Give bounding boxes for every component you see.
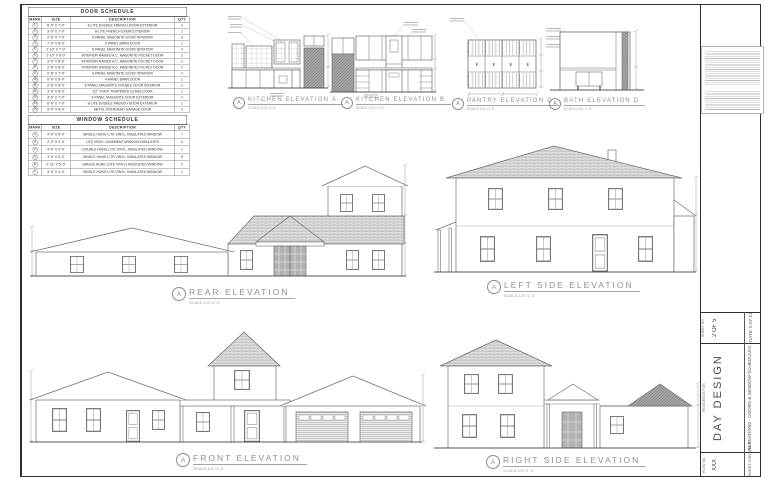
detail-title: KITCHEN ELEVATION B bbox=[356, 97, 451, 105]
window bbox=[465, 375, 479, 394]
kitchen-elevation-b-label: A KITCHEN ELEVATION B SCALE:1/4"=1'-0" bbox=[341, 97, 451, 110]
client-name: DAY DESIGN bbox=[712, 345, 724, 450]
window bbox=[87, 409, 101, 432]
bath-elevation-d-label: A BATH ELEVATION D SCALE:1/4"=1'-0" bbox=[549, 98, 645, 111]
window bbox=[481, 237, 495, 262]
detail-mark: A bbox=[549, 98, 561, 110]
sheet-no-label: SHEET NO. bbox=[701, 313, 705, 342]
residence-for-label: RESIDENCE FOR: bbox=[702, 345, 706, 450]
refrigerator-cabinet bbox=[304, 36, 324, 88]
left-side-elevation-drawing bbox=[432, 138, 698, 278]
garage-roof bbox=[280, 376, 426, 406]
cell-size: 9'-0" X 8'-0" bbox=[42, 107, 71, 113]
kitchen-elevation-a-label: A KITCHEN ELEVATION A SCALE:1/4"=1'-0" bbox=[233, 97, 343, 110]
pantry-cabinets bbox=[468, 40, 536, 88]
garage bbox=[280, 376, 426, 442]
bath-vanity bbox=[560, 32, 630, 90]
porch bbox=[176, 400, 290, 442]
range-hood bbox=[386, 36, 402, 72]
detail-mark: A bbox=[172, 287, 186, 301]
callout-notes bbox=[546, 28, 561, 47]
french-doors bbox=[274, 246, 306, 276]
general-notes bbox=[701, 46, 764, 114]
detail-title: KITCHEN ELEVATION A bbox=[248, 97, 343, 105]
left-wing-roof bbox=[30, 228, 234, 252]
cell-size: 4'-0" X 5'-0" bbox=[42, 131, 71, 139]
right-side-elevation-label: A RIGHT SIDE ELEVATION SCALE:1/4"=1'-0" bbox=[486, 455, 646, 473]
window bbox=[639, 237, 653, 262]
detail-mark: A bbox=[486, 455, 500, 469]
detail-title: LEFT SIDE ELEVATION bbox=[504, 280, 640, 292]
titleblock-subdivider bbox=[744, 312, 745, 477]
window bbox=[341, 195, 353, 212]
detail-mark: A bbox=[176, 453, 190, 467]
detail-title: FRONT ELEVATION bbox=[193, 453, 307, 465]
detail-scale: SCALE:1/4"=1'-0" bbox=[503, 468, 646, 473]
plan-no-label: PLAN NO. bbox=[702, 453, 706, 476]
pantry-elevation-c-label: A PANTRY ELEVATION C SCALE:1/4"=1'-0" bbox=[452, 98, 559, 111]
detail-scale: SCALE:1/4"=1'-0" bbox=[189, 300, 295, 305]
callout-notes bbox=[228, 16, 242, 33]
left-wing-roof bbox=[30, 372, 186, 400]
porch bbox=[436, 222, 456, 272]
center-gable-block bbox=[208, 332, 280, 402]
pantry-elevation-c-drawing bbox=[450, 14, 554, 98]
window bbox=[71, 256, 84, 272]
window bbox=[347, 251, 359, 270]
refrigerator-cabinet bbox=[332, 38, 354, 92]
front-elevation-label: A FRONT ELEVATION SCALE:1/4"=1'-0" bbox=[176, 453, 307, 471]
detail-scale: SCALE:1/4"=1'-0" bbox=[467, 107, 559, 111]
detail-scale: SCALE:1/4"=1'-0" bbox=[193, 466, 307, 471]
window bbox=[489, 189, 503, 210]
base-cabinets bbox=[232, 70, 300, 88]
kitchen-elevation-b-drawing bbox=[328, 20, 440, 98]
detail-mark: A bbox=[452, 98, 464, 110]
window-schedule-title: WINDOW SCHEDULE bbox=[28, 115, 187, 125]
upper-cabinets bbox=[274, 40, 300, 64]
right-side-elevation-drawing bbox=[432, 326, 702, 454]
detail-scale: SCALE:1/4"=1'-0" bbox=[504, 293, 640, 298]
kitchen-elevation-a-drawing bbox=[226, 8, 332, 100]
door-schedule: DOOR SCHEDULE MARK SIZE DESCRIPTION QTY … bbox=[28, 7, 190, 113]
window bbox=[53, 409, 67, 432]
window bbox=[611, 417, 624, 434]
detail-title: REAR ELEVATION bbox=[189, 287, 295, 299]
callout-notes bbox=[270, 93, 284, 96]
sheet-contents-label: SHEET CONTENTS bbox=[748, 453, 752, 476]
window bbox=[537, 237, 551, 262]
callout-notes bbox=[450, 18, 464, 21]
window bbox=[463, 415, 477, 438]
date-value: DATE: 5-07-21 bbox=[748, 313, 753, 342]
cell-mark: A bbox=[28, 131, 42, 139]
entry-porch bbox=[544, 384, 600, 448]
roof bbox=[440, 340, 552, 366]
detail-mark: A bbox=[487, 280, 501, 294]
window bbox=[197, 413, 210, 432]
kitchen-window bbox=[246, 46, 272, 68]
window bbox=[235, 371, 250, 390]
window bbox=[123, 256, 136, 272]
window bbox=[153, 411, 165, 430]
window bbox=[373, 251, 385, 270]
detail-scale: SCALE:1/4"=1'-0" bbox=[564, 107, 645, 111]
titleblock-line bbox=[700, 343, 761, 344]
front-elevation-drawing bbox=[28, 308, 426, 454]
dimension-line bbox=[696, 382, 700, 448]
dimension-line bbox=[634, 30, 638, 90]
roof bbox=[446, 146, 682, 178]
table-row: 159'-0" X 8'-0"METAL OVERHEAD GARAGE DOO… bbox=[28, 107, 189, 113]
window bbox=[175, 256, 188, 272]
plan-no-value: XXX bbox=[712, 453, 718, 476]
detail-title: RIGHT SIDE ELEVATION bbox=[503, 455, 646, 467]
window bbox=[241, 251, 253, 270]
side-door bbox=[127, 411, 140, 442]
window bbox=[373, 195, 385, 212]
entry-door bbox=[245, 411, 260, 442]
cell-qty: 2 bbox=[175, 107, 190, 113]
door-schedule-title: DOOR SCHEDULE bbox=[28, 7, 187, 17]
entry-door bbox=[562, 412, 582, 448]
bath-elevation-d-drawing bbox=[546, 24, 650, 98]
detail-scale: SCALE:1/4"=1'-0" bbox=[248, 106, 343, 110]
tall-linen-cabinet bbox=[622, 32, 628, 90]
cell-mark: 15 bbox=[28, 107, 42, 113]
table-row: A4'-0" X 5'-0"SINGLE HUNG LITE VINYL, IN… bbox=[28, 131, 189, 139]
cell-desc: SINGLE HUNG LITE VINYL, INSULATED WINDOW bbox=[70, 131, 175, 139]
detail-title: BATH ELEVATION D bbox=[564, 98, 645, 106]
garage-side bbox=[600, 384, 692, 448]
detail-title: PANTRY ELEVATION C bbox=[467, 98, 559, 106]
detail-mark: A bbox=[233, 97, 245, 109]
base-cabinets bbox=[356, 70, 432, 92]
left-side-elevation-label: A LEFT SIDE ELEVATION SCALE:1/4"=1'-0" bbox=[487, 280, 640, 298]
dimension-line bbox=[694, 176, 698, 272]
cell-desc: METAL OVERHEAD GARAGE DOOR bbox=[70, 107, 175, 113]
rear-elevation-label: A REAR ELEVATION SCALE:1/4"=1'-0" bbox=[172, 287, 295, 305]
sheet-no-value: 2 OF 5 bbox=[712, 313, 718, 342]
detail-scale: SCALE:1/4"=1'-0" bbox=[356, 106, 451, 110]
door-schedule-table: MARK SIZE DESCRIPTION QTY 16'-0" X 7'-0"… bbox=[28, 17, 190, 114]
window bbox=[549, 189, 563, 210]
gable-end bbox=[628, 384, 692, 406]
detail-mark: A bbox=[341, 97, 353, 109]
sheet-title: ELEVATIONS - DOORS & WINDOW SCHEDULES bbox=[747, 345, 752, 451]
window bbox=[609, 189, 623, 210]
cell-qty: 7 bbox=[175, 131, 190, 139]
callout-notes bbox=[404, 22, 426, 32]
rear-elevation-drawing bbox=[28, 140, 408, 288]
window bbox=[499, 375, 513, 394]
window bbox=[501, 415, 515, 438]
right-wing bbox=[674, 200, 696, 272]
drawing-sheet: DOOR SCHEDULE MARK SIZE DESCRIPTION QTY … bbox=[0, 0, 768, 482]
dimension-line bbox=[433, 34, 437, 92]
entry-door bbox=[593, 235, 608, 271]
